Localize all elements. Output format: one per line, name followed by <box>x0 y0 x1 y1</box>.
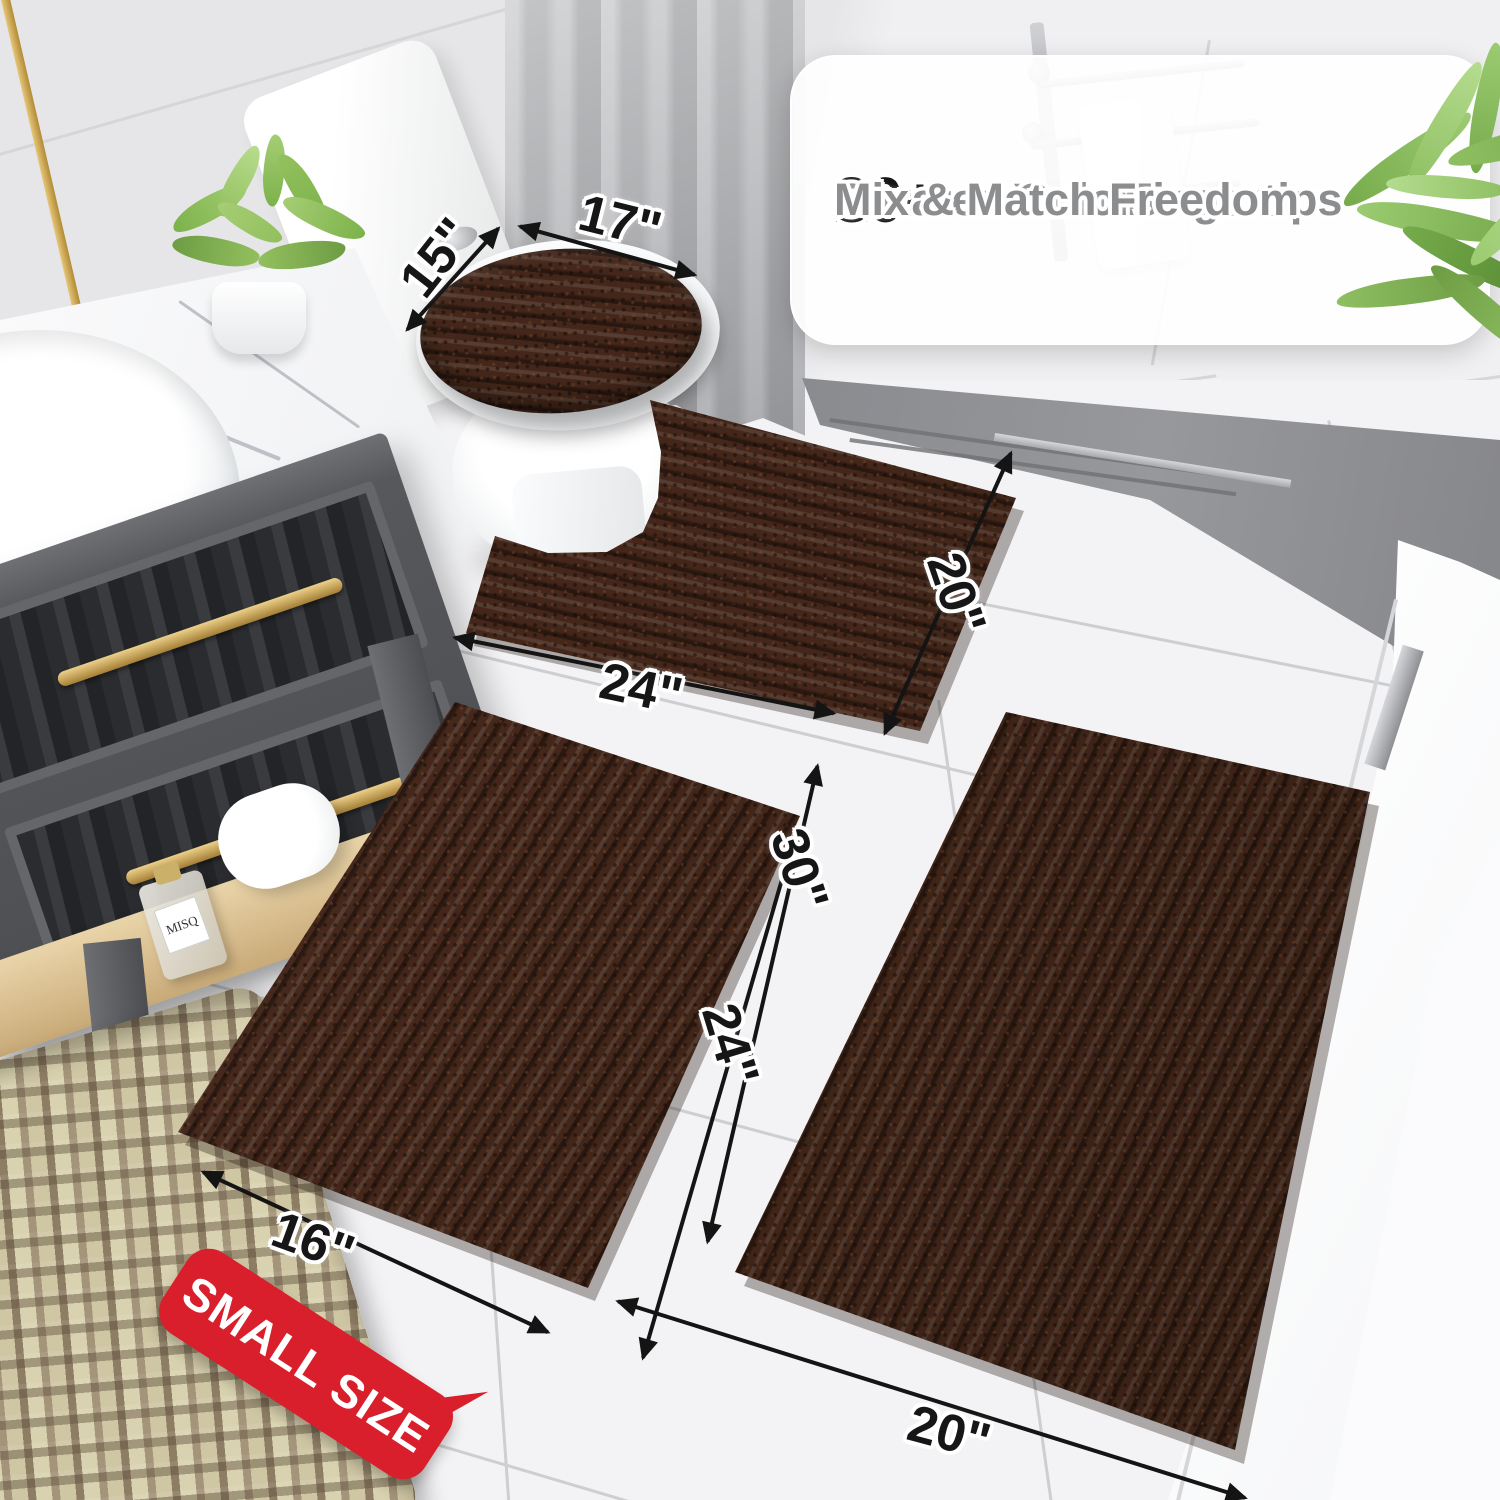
drawer-handle <box>56 576 345 688</box>
bottle-label: MISQ <box>154 896 211 954</box>
feature-label: Mix & Match Freedom <box>834 174 1299 226</box>
product-image: MISQ ✔ 20+ Sizes at Your Fingertips ✔ 30… <box>0 0 1500 1500</box>
plant-pot <box>212 282 306 354</box>
